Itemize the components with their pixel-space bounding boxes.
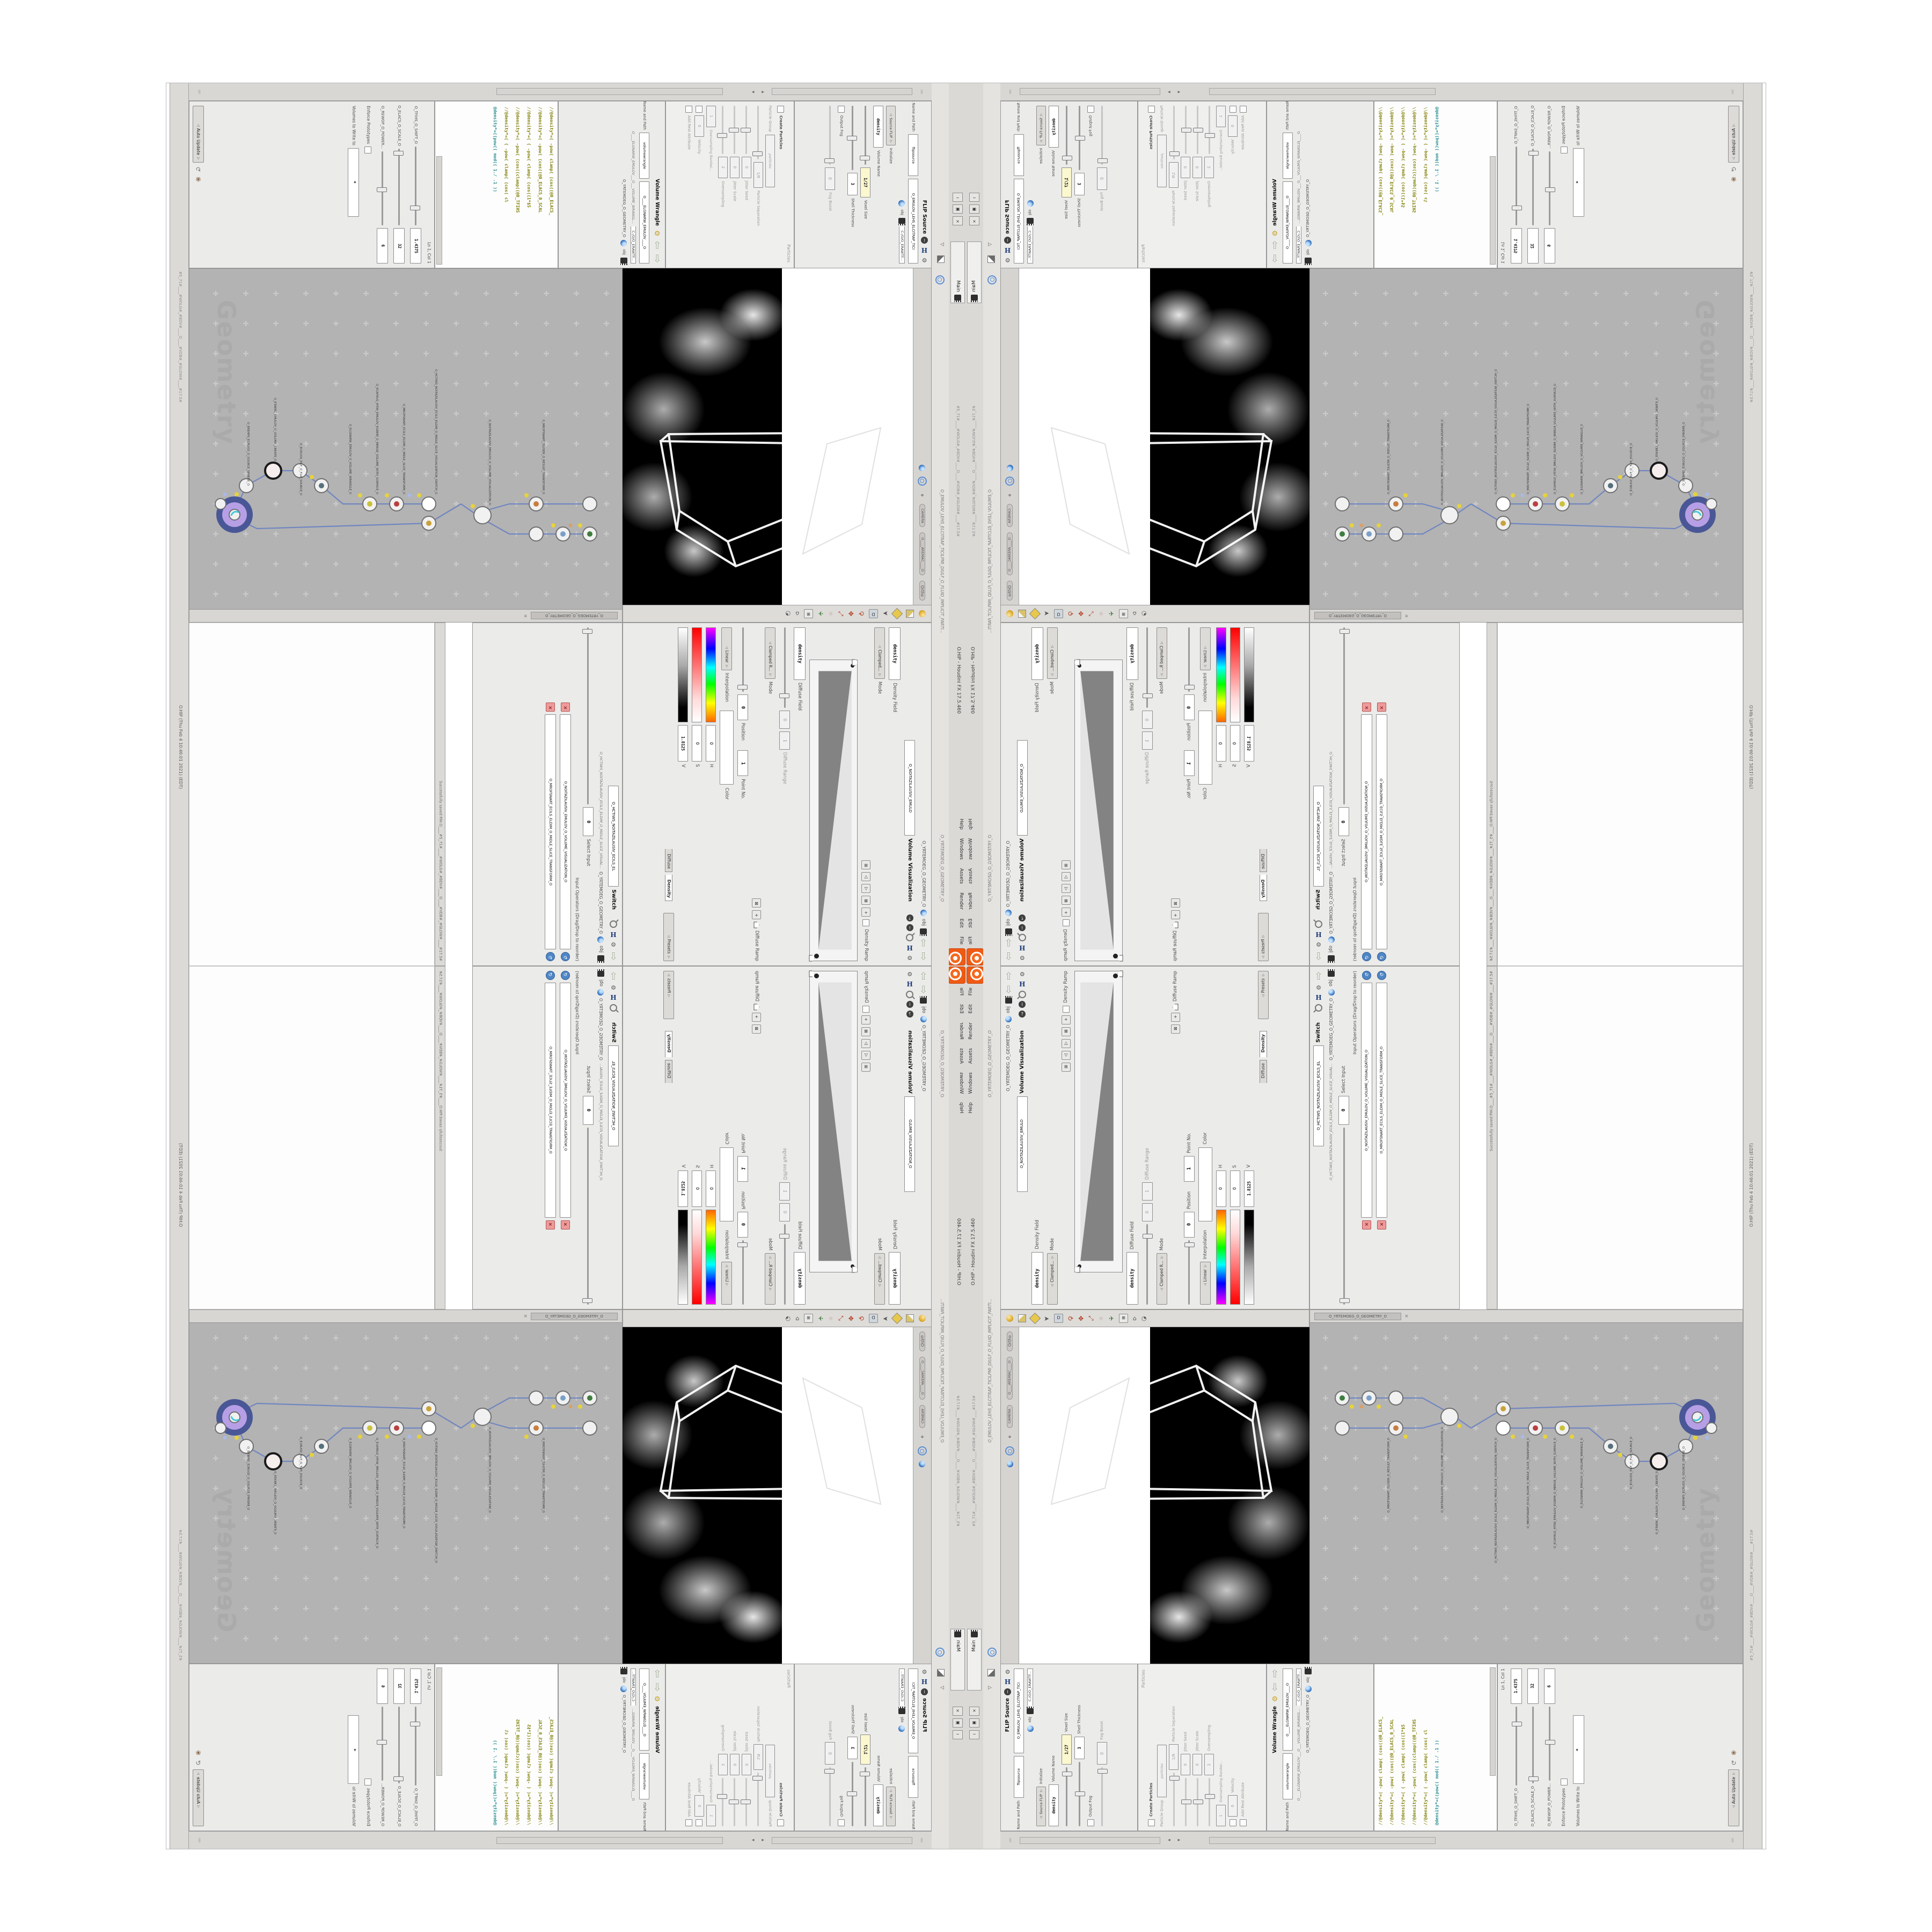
pane-grip[interactable]: ⣿: [1731, 90, 1735, 94]
info-icon[interactable]: i: [1019, 924, 1026, 931]
pane-up-arrow[interactable]: ⇧: [653, 1668, 662, 1679]
pane-up-arrow[interactable]: ⇧: [919, 971, 928, 982]
target-icon[interactable]: [987, 275, 997, 284]
scale-value[interactable]: 32: [1527, 228, 1539, 264]
breadcrumb-path[interactable]: O_YRTEMOEG_O_GEOMETRY_O: [1006, 841, 1011, 907]
search-icon[interactable]: [906, 991, 913, 998]
wrangle-name-field[interactable]: O____ELGNARW_EMULOV____O: [639, 181, 649, 264]
oversampling-bw-input[interactable]: 1: [1216, 1805, 1226, 1826]
ramp-flag-bottom[interactable]: [852, 1267, 858, 1273]
view-camera2-pill[interactable]: CAMERA: [1007, 1405, 1013, 1428]
switch-input-1[interactable]: O_NOITAZILAUSIV_EMULOV_O_VOLUME_VISUALIZ…: [560, 983, 571, 1218]
view-cycle-icon[interactable]: ◔: [1141, 1315, 1147, 1322]
snap-icon[interactable]: ✳: [1099, 610, 1104, 618]
tab-flip-long[interactable]: O_EMULOV_LEHS_ELCITRAP_TICILPMI_DIULF_O_…: [940, 1299, 945, 1443]
gear-icon[interactable]: ⚙: [907, 954, 912, 961]
menu-render[interactable]: Render: [969, 1022, 974, 1040]
voxel-size-slider[interactable]: [1066, 1767, 1067, 1826]
jitter-seed-slider[interactable]: [746, 1778, 748, 1826]
jitter-scale-input[interactable]: 0: [730, 1754, 740, 1775]
velocity-checkbox[interactable]: [1230, 106, 1236, 113]
target-icon[interactable]: [935, 1648, 945, 1657]
help-icon[interactable]: ?: [1019, 914, 1026, 921]
pane-up-arrow[interactable]: ⇧: [1270, 1668, 1279, 1679]
snap-icon[interactable]: ✳: [828, 1315, 833, 1322]
shell-thickness-input[interactable]: 3: [847, 1737, 858, 1759]
fog-boost-input[interactable]: 0: [1097, 167, 1107, 190]
diffuse-ramp-flag[interactable]: [1173, 921, 1179, 928]
shell-thickness-slider[interactable]: [852, 1762, 853, 1826]
oversampling-bw-input[interactable]: 1: [706, 1805, 716, 1826]
h-scrollbar[interactable]: [1209, 1837, 1436, 1844]
menu-windows[interactable]: Windows: [958, 1072, 963, 1094]
obj-network-icon[interactable]: [1005, 998, 1012, 1004]
window-close-button[interactable]: ×: [953, 1707, 963, 1716]
hue-input[interactable]: 0: [1216, 725, 1226, 762]
camera-lock-icon[interactable]: ⌂: [795, 1315, 799, 1322]
delete-input-2-button[interactable]: ×: [546, 1220, 555, 1230]
shift-value[interactable]: 1.4375: [411, 228, 422, 264]
network-tab[interactable]: O_YRTEMOEG_O_GEOMETRY_O: [1314, 1313, 1401, 1320]
gear-icon[interactable]: ⚙: [611, 941, 616, 948]
auto-update-dropdown[interactable]: △ Auto Update ▽: [1728, 1769, 1739, 1826]
power-value[interactable]: 6: [377, 228, 389, 264]
delete-input-1-button[interactable]: ×: [1362, 702, 1371, 712]
density-ramp-editor[interactable]: [809, 971, 858, 1272]
fog-boost-input[interactable]: 0: [1097, 1742, 1107, 1765]
switch-input-2[interactable]: O_MROFSNART_ECILS_ELDIM_O_MIDLE_SLICE_TR…: [1376, 983, 1387, 1218]
volume-name-input[interactable]: density: [1049, 1784, 1059, 1826]
breadcrumb-path[interactable]: O_YRTEMOEG_O_GEOMETRY_O: [1306, 179, 1310, 237]
ramp-del-button[interactable]: ⊠: [1062, 896, 1071, 905]
render-region-button[interactable]: ⊞: [804, 609, 813, 618]
update-icon[interactable]: ❀: [195, 1749, 201, 1757]
wrangle-long-tab[interactable]: O____ELGNARW_EMULOV___O___VOLUME_WRANGL.…: [1297, 131, 1301, 223]
jitter-seed-input[interactable]: 0: [742, 1754, 751, 1775]
flip-name2-field[interactable]: flipsource: [1014, 1756, 1024, 1798]
jitter-scale-slider[interactable]: [734, 106, 736, 154]
select-input-slider[interactable]: [588, 1128, 589, 1305]
select-input-field[interactable]: 0: [1338, 1096, 1349, 1125]
enforce-prototypes-checkbox[interactable]: [365, 147, 372, 153]
select-tool-icon[interactable]: [919, 610, 926, 617]
pane-up-arrow[interactable]: ⇧: [919, 950, 928, 961]
select-input-field[interactable]: 0: [583, 1096, 594, 1125]
scale-slider[interactable]: [1532, 149, 1534, 225]
window-minimize-button[interactable]: ─: [969, 1730, 979, 1739]
breadcrumb-obj[interactable]: obj: [622, 249, 626, 255]
velocity-input[interactable]: 0: [694, 1795, 704, 1817]
shell-thickness-slider[interactable]: [852, 106, 853, 170]
density-field-input[interactable]: density: [1031, 1252, 1043, 1305]
fog-boost-slider[interactable]: [829, 106, 831, 165]
diffuse-mode-dropdown[interactable]: △ Clamped R... ▽: [1157, 627, 1167, 679]
search-icon[interactable]: [610, 920, 617, 928]
select-tool-icon[interactable]: [919, 1315, 926, 1322]
ramp-dn-button[interactable]: ▽: [861, 872, 870, 881]
density-mode-dropdown[interactable]: △ Clamped... ▽: [1047, 627, 1058, 679]
pin-icon[interactable]: ⌖: [1008, 491, 1011, 499]
menu-render[interactable]: Render: [969, 892, 974, 910]
obj-network-icon[interactable]: [1027, 1708, 1034, 1714]
wrangle-long-tab[interactable]: O____ELGNARW_EMULOV___O___VOLUME_WRANGL.…: [632, 1708, 635, 1801]
gear-icon[interactable]: ⚙: [611, 984, 616, 991]
window-close-button[interactable]: ×: [969, 1707, 979, 1716]
diffuse-range-slider[interactable]: [784, 627, 786, 708]
info-icon[interactable]: i: [906, 1001, 913, 1008]
breadcrumb-obj[interactable]: obj: [1329, 979, 1334, 986]
translate-gizmo-icon[interactable]: ✥: [848, 610, 854, 618]
diffuse-field-input[interactable]: density: [794, 627, 806, 680]
scale-gizmo-icon[interactable]: ⤡: [1088, 1314, 1094, 1322]
breadcrumb-path[interactable]: O_YRTEMOEG_O_GEOMETRY_O: [599, 998, 603, 1060]
pane-down-arrow[interactable]: ⇩: [919, 984, 928, 995]
volviz-name-field[interactable]: O_NOITAZILAUSIV_EMULO: [904, 1096, 915, 1192]
fog-boost-input[interactable]: 0: [825, 1742, 835, 1765]
main-desktop-tab[interactable]: Main: [950, 1629, 965, 1690]
diffuse-ramp-flag[interactable]: [1173, 1004, 1179, 1011]
volumes-to-write-input[interactable]: *: [1573, 148, 1584, 217]
ramp-flag-bottom[interactable]: [852, 660, 858, 666]
density-mode-dropdown[interactable]: △ Clamped... ▽: [874, 627, 885, 679]
flip-name-field[interactable]: O_EMULOV_LEHS_ELCITRAP_TICI: [1014, 179, 1024, 264]
auto-update-dropdown[interactable]: △ Auto Update ▽: [193, 1769, 204, 1826]
file-tab[interactable]: C:/O/O_ERAWTF...: [899, 1668, 905, 1706]
help-icon[interactable]: ?: [1019, 1011, 1026, 1018]
code-scrollbar[interactable]: [1490, 1667, 1496, 1776]
wrangle-name-field[interactable]: O____ELGNARW_EMULOV____O: [1283, 181, 1293, 264]
gear-icon[interactable]: ⚙: [1005, 257, 1011, 264]
wrangle-name2-field[interactable]: volumewrangle: [1283, 1753, 1293, 1799]
tab-density[interactable]: Density: [1260, 875, 1267, 901]
wrangle-name-field[interactable]: O____ELGNARW_EMULOV____O: [639, 1668, 649, 1751]
breadcrumb-obj[interactable]: obj: [598, 979, 603, 986]
diffuse-range-lo[interactable]: 0: [1142, 711, 1153, 729]
select-input-slider[interactable]: [1343, 1128, 1345, 1305]
position-slider[interactable]: [1188, 627, 1190, 692]
breadcrumb-path[interactable]: O_YRTEMOEG_O_GEOMETRY_O: [921, 1025, 926, 1091]
menu-assets[interactable]: Assets: [969, 868, 974, 884]
pane-down-arrow[interactable]: ⇩: [1004, 984, 1013, 995]
voxel-size-slider[interactable]: [865, 106, 866, 165]
diffuse-range-hi[interactable]: 1: [779, 731, 790, 750]
particles-field[interactable]: particles: [765, 135, 775, 187]
main-desktop-tab[interactable]: Main: [967, 241, 982, 303]
fog-boost-slider[interactable]: [829, 1767, 831, 1826]
sat-ramp[interactable]: [692, 1210, 702, 1305]
view-ortho-pill[interactable]: Ortho: [919, 1331, 926, 1351]
file-tab[interactable]: C:/O/O_ERAWTF...: [899, 226, 905, 264]
menu-file[interactable]: File: [969, 936, 974, 945]
density-field-input[interactable]: density: [889, 627, 901, 680]
network-tab-close-icon[interactable]: ×: [1404, 1314, 1409, 1319]
ramp-dn-button[interactable]: ▽: [861, 1051, 870, 1060]
obj-network-icon[interactable]: [597, 955, 604, 961]
flip-name2-field[interactable]: flipsource: [908, 134, 918, 176]
view-camera2-pill[interactable]: CAMERA: [919, 1405, 925, 1428]
pin-icon[interactable]: ⌖: [1008, 1433, 1011, 1441]
search-icon[interactable]: [1315, 920, 1322, 928]
render-region-button[interactable]: ⊞: [804, 1314, 813, 1323]
search-icon[interactable]: [1019, 991, 1026, 998]
jitter-seed-slider[interactable]: [1185, 106, 1187, 154]
ramp-add-button[interactable]: +: [1062, 908, 1071, 917]
expand-icon[interactable]: [937, 255, 945, 263]
cursor-icon[interactable]: ➤: [1044, 1315, 1049, 1322]
reorder-icon[interactable]: ↻: [561, 952, 570, 961]
initialize-dropdown[interactable]: △ Source FLIP ▽: [1036, 1787, 1046, 1826]
val-ramp[interactable]: [678, 1210, 688, 1305]
pane-grip[interactable]: ⣿: [920, 1838, 923, 1842]
val-ramp[interactable]: [678, 627, 688, 722]
menu-edit[interactable]: Edit: [958, 919, 963, 928]
h-scrollbar[interactable]: [772, 1837, 912, 1844]
delete-input-2-button[interactable]: ×: [1377, 1220, 1386, 1230]
reorder-icon[interactable]: ↻: [561, 971, 570, 980]
shell-thickness-input[interactable]: 3: [847, 173, 858, 195]
flip-name2-field[interactable]: flipsource: [908, 1756, 918, 1798]
breadcrumb-path[interactable]: O_YRTEMOEG_O_GEOMETRY_O: [1306, 1695, 1310, 1753]
breadcrumb-obj[interactable]: obj: [921, 919, 926, 926]
ramp-del-button[interactable]: ⊠: [861, 1027, 870, 1036]
pane-up-arrow[interactable]: ⇧: [1314, 971, 1323, 982]
color-swatch[interactable]: [1198, 711, 1212, 785]
breadcrumb-obj[interactable]: obj: [921, 1006, 926, 1013]
ramp-point-high[interactable]: [814, 974, 819, 978]
cursor-icon[interactable]: ➤: [1044, 610, 1049, 618]
diffuse-ramp-del[interactable]: ⊠: [1171, 1024, 1180, 1034]
gear-icon[interactable]: ⚙: [922, 1668, 927, 1675]
shift-slider[interactable]: [1516, 147, 1517, 225]
diffuse-range-hi[interactable]: 1: [1142, 1182, 1153, 1201]
ramp-point-high[interactable]: [1113, 974, 1118, 978]
window-minimize-button[interactable]: ─: [953, 193, 963, 202]
pane-down-arrow[interactable]: ⇩: [653, 239, 662, 250]
gear-icon[interactable]: ⚙: [922, 257, 927, 264]
pane-up-arrow[interactable]: ⇧: [1004, 950, 1013, 961]
viewport-render-area[interactable]: [622, 1327, 913, 1664]
color-swatch[interactable]: [1198, 1147, 1212, 1221]
presets-dropdown[interactable]: △ Presets ▽: [1258, 971, 1269, 1019]
diffuse-field-input[interactable]: density: [1126, 627, 1138, 680]
breadcrumb-obj[interactable]: obj: [598, 946, 603, 953]
shell-thickness-input[interactable]: 3: [1074, 173, 1085, 195]
volume-name-input[interactable]: density: [873, 1784, 883, 1826]
handles-tool-icon[interactable]: [906, 610, 914, 618]
viewport-render-area[interactable]: [1019, 1327, 1310, 1664]
oversampling-bw-input[interactable]: 1: [1216, 106, 1226, 127]
target-icon[interactable]: [918, 477, 927, 486]
ramp-grid-button[interactable]: ⊞: [1062, 1063, 1071, 1072]
pane-down-arrow[interactable]: ⇩: [1270, 1682, 1279, 1693]
ramp-add-button[interactable]: +: [861, 1015, 870, 1024]
diffuse-ramp-flag[interactable]: [753, 1004, 759, 1011]
shift-value[interactable]: 1.4375: [1511, 228, 1522, 264]
density-ramp-checkbox[interactable]: [1063, 919, 1070, 926]
initialize-dropdown[interactable]: △ Source FLIP ▽: [1036, 106, 1046, 145]
breadcrumb-obj[interactable]: obj: [622, 1677, 626, 1683]
wrangle-name-field[interactable]: O____ELGNARW_EMULOV____O: [1283, 1668, 1293, 1751]
diffuse-mode-dropdown[interactable]: △ Clamped R... ▽: [765, 1253, 775, 1305]
translate-gizmo-icon[interactable]: ✥: [848, 1315, 854, 1322]
hue-ramp[interactable]: [706, 1210, 716, 1305]
output-fog-checkbox[interactable]: [1087, 106, 1094, 113]
jitter-seed-slider[interactable]: [746, 106, 748, 154]
hue-input[interactable]: 0: [706, 1170, 716, 1207]
menu-windows[interactable]: Windows: [969, 838, 974, 860]
window-minimize-button[interactable]: ─: [953, 1730, 963, 1739]
network-tab-close-icon[interactable]: ×: [523, 613, 528, 619]
network-tab-close-icon[interactable]: ×: [1404, 613, 1409, 619]
jitter-scale-slider[interactable]: [734, 1778, 736, 1826]
volume-name-input[interactable]: density: [1049, 106, 1059, 148]
interpolation-dropdown[interactable]: △ Linear ▽: [1200, 627, 1211, 670]
view-cycle-icon[interactable]: ◔: [785, 1315, 791, 1322]
scale-slider[interactable]: [399, 1707, 400, 1783]
sat-input[interactable]: 0: [692, 1170, 702, 1207]
diffuse-ramp-del[interactable]: ⊠: [752, 898, 761, 908]
menu-edit[interactable]: Edit: [958, 1004, 963, 1013]
gear-icon[interactable]: ⚙: [1020, 971, 1025, 978]
expand-icon[interactable]: [987, 1669, 995, 1677]
tab-flip-long[interactable]: O_EMULOV_LEHS_ELCITRAP_TICILPMI_DIULF_O_…: [988, 1299, 992, 1443]
particle-separation-input[interactable]: 1/9: [753, 1744, 763, 1770]
velocity-checkbox[interactable]: [696, 1819, 703, 1826]
ramp-point-high[interactable]: [814, 954, 819, 958]
ramp-flag-top[interactable]: [1117, 955, 1123, 962]
view-ortho-pill[interactable]: Ortho: [1007, 581, 1013, 601]
handles-tool-icon[interactable]: [1018, 610, 1026, 618]
view-ortho-pill[interactable]: Ortho: [1007, 1331, 1013, 1351]
houdini-logo[interactable]: [967, 948, 984, 965]
target-icon[interactable]: [987, 1648, 997, 1657]
window-restore-button[interactable]: ▣: [953, 204, 963, 214]
target-icon[interactable]: [1005, 1446, 1014, 1455]
switch-input-2[interactable]: O_MROFSNART_ECILS_ELDIM_O_MIDLE_SLICE_TR…: [545, 983, 556, 1218]
scroll-right-icon[interactable]: ▸: [752, 1838, 755, 1843]
breadcrumb-path[interactable]: O_YRTEMOEG_O_GEOMETRY_O: [1006, 1025, 1011, 1091]
delete-input-1-button[interactable]: ×: [561, 702, 570, 712]
obj-network-icon[interactable]: [1328, 955, 1335, 961]
volumes-to-write-input[interactable]: *: [348, 148, 360, 217]
output-fog-checkbox[interactable]: [838, 106, 845, 113]
shift-value[interactable]: 1.4375: [411, 1668, 422, 1704]
particles-field[interactable]: particles: [1157, 135, 1167, 187]
point-no-input[interactable]: 1: [737, 1156, 748, 1182]
position-slider[interactable]: [742, 627, 744, 692]
position-slider[interactable]: [1188, 1240, 1190, 1305]
ramp-del-button[interactable]: ⊠: [1062, 1027, 1071, 1036]
breadcrumb-path[interactable]: O_YRTEMOEG_O_GEOMETRY_O: [622, 179, 626, 237]
density-mode-dropdown[interactable]: △ Clamped... ▽: [1047, 1253, 1058, 1305]
interpolation-dropdown[interactable]: △ Linear ▽: [721, 1262, 732, 1305]
breadcrumb-path[interactable]: O_YRTEMOEG_O_GEOMETRY_O: [1329, 872, 1334, 934]
position-input[interactable]: 0: [737, 1212, 748, 1238]
info-icon[interactable]: i: [1004, 1688, 1011, 1695]
jitter-seed-input[interactable]: 0: [742, 157, 751, 178]
info-icon[interactable]: i: [921, 1688, 928, 1695]
diffuse-range-slider[interactable]: [1146, 1224, 1148, 1305]
menu-help[interactable]: Help: [958, 1102, 963, 1114]
breadcrumb-obj[interactable]: obj: [1306, 249, 1310, 255]
point-no-input[interactable]: 1: [1184, 1156, 1195, 1182]
diffuse-mode-dropdown[interactable]: △ Clamped R... ▽: [1157, 1253, 1167, 1305]
create-particles-checkbox[interactable]: [777, 106, 784, 113]
enforce-prototypes-checkbox[interactable]: [1561, 147, 1568, 153]
cursor-icon[interactable]: ➤: [883, 1315, 888, 1322]
diffuse-range-lo[interactable]: 0: [779, 1203, 790, 1221]
tab-flip-long[interactable]: O_EMULOV_LEHS_ELCITRAP_TICILPMI_DIULF_O_…: [940, 489, 945, 633]
tab-geometry-path[interactable]: O_YRTEMOEG_O_GEOMETRY_O: [988, 835, 992, 902]
diffuse-range-hi[interactable]: 1: [1142, 731, 1153, 750]
render-region-button[interactable]: ⊞: [1119, 609, 1128, 618]
tab-density[interactable]: Density: [1260, 1031, 1267, 1057]
rotate-gizmo-icon[interactable]: ⟳: [1068, 610, 1073, 618]
switch-input-1[interactable]: O_NOITAZILAUSIV_EMULOV_O_VOLUME_VISUALIZ…: [560, 714, 571, 949]
rotate-gizmo-icon[interactable]: ⟳: [1068, 1315, 1073, 1322]
handles-tool-icon[interactable]: [1018, 1314, 1026, 1322]
diffuse-ramp-add[interactable]: +: [1171, 1013, 1180, 1022]
handles-tool-icon[interactable]: [906, 1314, 914, 1322]
breadcrumb-obj[interactable]: obj: [1006, 1006, 1011, 1013]
shift-value[interactable]: 1.4375: [1511, 1668, 1522, 1704]
render-flip-icon[interactable]: ✈: [818, 610, 823, 618]
network-graph[interactable]: [188, 268, 622, 609]
view-camera-pill[interactable]: O____AREMAC____O: [1007, 532, 1013, 575]
render-flip-icon[interactable]: ✈: [818, 1315, 823, 1322]
pane-grip[interactable]: ⣿: [1009, 90, 1012, 94]
window-minimize-button[interactable]: ─: [969, 193, 979, 202]
volviz-name-field[interactable]: O_NOITAZILAUSIV_EMULO: [904, 740, 915, 836]
particle-separation-input[interactable]: 1/9: [1169, 1744, 1179, 1770]
menu-windows[interactable]: Windows: [969, 1072, 974, 1094]
obj-network-icon[interactable]: [1305, 258, 1312, 264]
move-tool-icon[interactable]: [1029, 1313, 1041, 1324]
move-tool-icon[interactable]: [1029, 608, 1041, 619]
menu-edit[interactable]: Edit: [969, 1004, 974, 1013]
density-field-input[interactable]: density: [889, 1252, 901, 1305]
gear-icon[interactable]: ⚙: [1005, 1668, 1011, 1675]
voxel-size-input[interactable]: 1/27: [1062, 167, 1072, 197]
density-ramp-checkbox[interactable]: [862, 919, 869, 926]
tab-flip-long[interactable]: O_EMULOV_LEHS_ELCITRAP_TICILPMI_DIULF_O_…: [988, 489, 992, 633]
help-icon[interactable]: ?: [906, 914, 913, 921]
pane-up-arrow[interactable]: ⇧: [609, 950, 618, 961]
network-tab[interactable]: O_YRTEMOEG_O_GEOMETRY_O: [531, 1313, 618, 1320]
power-slider[interactable]: [382, 1707, 384, 1781]
menu-help[interactable]: Help: [958, 818, 963, 830]
scale-value[interactable]: 32: [394, 1668, 405, 1704]
power-slider[interactable]: [1549, 151, 1550, 225]
obj-network-icon[interactable]: [597, 971, 604, 977]
output-fog-checkbox[interactable]: [838, 1819, 845, 1826]
rotate-gizmo-icon[interactable]: ⟳: [859, 610, 864, 618]
position-slider[interactable]: [742, 1240, 744, 1305]
hue-ramp[interactable]: [706, 627, 716, 722]
obj-network-icon[interactable]: [1328, 971, 1335, 977]
pane-down-arrow[interactable]: ⇩: [1270, 239, 1279, 250]
obj-network-icon[interactable]: [620, 258, 627, 264]
scale-gizmo-icon[interactable]: ⤡: [1088, 610, 1094, 618]
menu-assets[interactable]: Assets: [969, 1048, 974, 1064]
expand-icon[interactable]: [987, 255, 995, 263]
scroll-right-icon[interactable]: ▸: [1178, 1838, 1181, 1843]
oversampling-input[interactable]: 2: [1204, 1754, 1214, 1775]
file-tab[interactable]: C:/O/O_ERAWTF...: [631, 226, 636, 264]
houdini-logo[interactable]: [948, 948, 965, 965]
tab-geometry-path[interactable]: O_YRTEMOEG_O_GEOMETRY_O: [940, 1030, 944, 1097]
pane-grip[interactable]: ⣿: [197, 90, 201, 94]
